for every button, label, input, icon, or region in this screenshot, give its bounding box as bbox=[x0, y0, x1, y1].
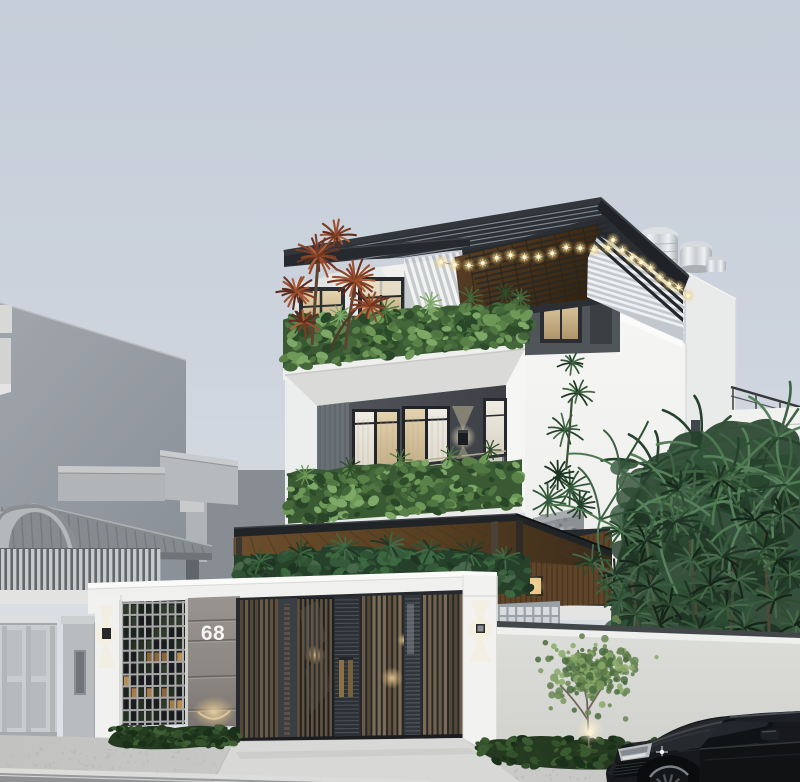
svg-text:68: 68 bbox=[201, 622, 225, 645]
